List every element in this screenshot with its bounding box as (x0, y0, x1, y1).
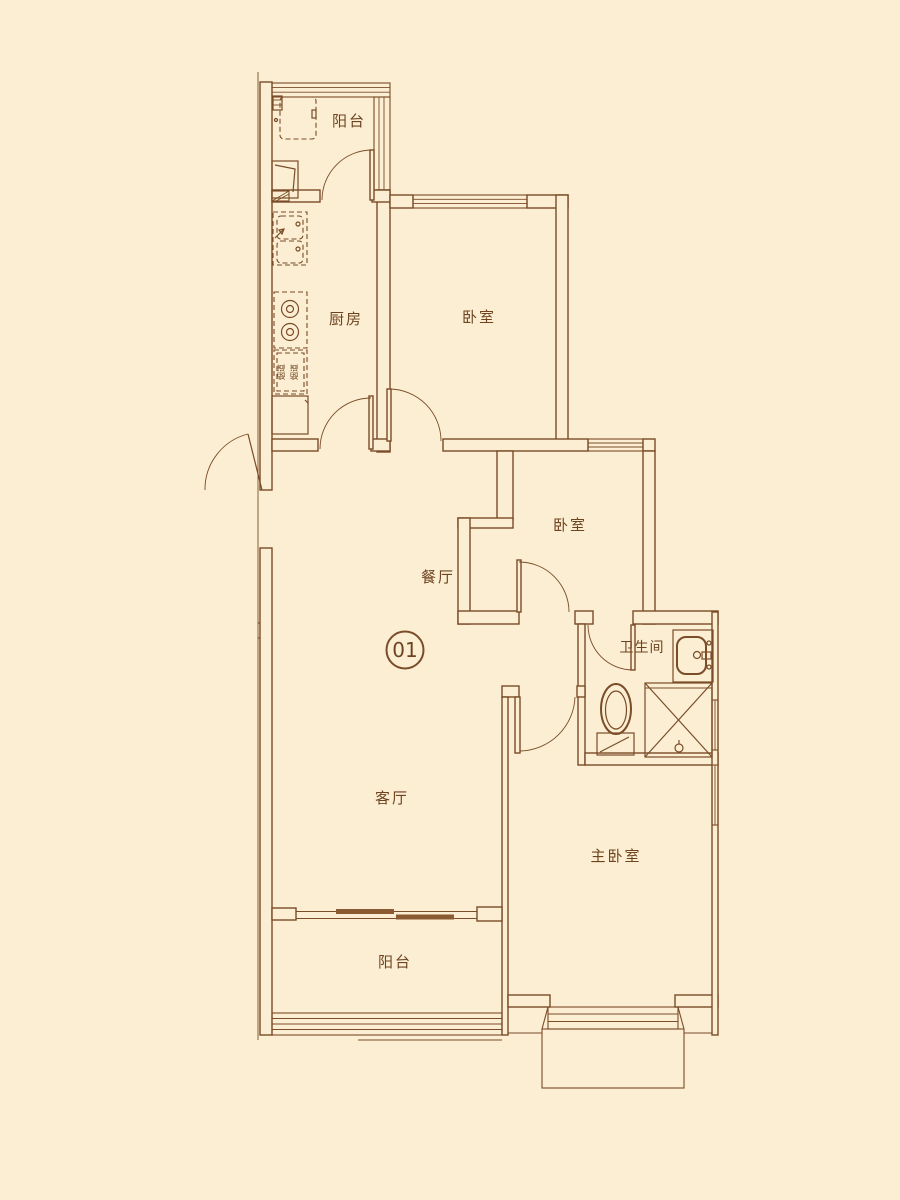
washbasin (673, 630, 713, 682)
kitchen-flue: 烟道 烟道 (274, 350, 307, 394)
unit-number: 01 (392, 638, 417, 662)
floor-plan-page: 烟道 烟道 (0, 0, 900, 1200)
bedroom-top-door (387, 389, 441, 441)
room-label-balcony-bottom: 阳台 (378, 953, 412, 971)
room-label-living: 客厅 (375, 789, 409, 807)
balcony-top-door (322, 150, 374, 200)
flue-label-1: 烟道 (276, 364, 286, 380)
room-label-bedroom-middle: 卧室 (553, 516, 587, 534)
window-bedroom-top (413, 195, 527, 208)
flue-label-2: 烟道 (289, 364, 299, 380)
window-bedroom-middle (588, 439, 643, 451)
sliding-door-living-balcony (296, 909, 477, 920)
bay-window-master (508, 1007, 712, 1088)
kitchen-cabinet (272, 396, 308, 434)
toilet (597, 684, 634, 755)
room-label-bathroom: 卫生间 (620, 640, 665, 656)
walls (260, 82, 718, 1035)
shower (645, 683, 712, 757)
master-bedroom-door (515, 697, 575, 753)
kitchen-fixtures: 烟道 烟道 (272, 212, 308, 434)
entry-door (205, 434, 262, 490)
room-label-kitchen: 厨房 (329, 310, 363, 328)
room-label-master-bedroom: 主卧室 (590, 847, 641, 865)
kitchen-door (320, 396, 373, 449)
room-label-balcony-top: 阳台 (332, 112, 366, 130)
unit-number-badge: 01 (387, 632, 424, 669)
washing-machine (273, 96, 316, 139)
room-label-bedroom-top: 卧室 (462, 308, 496, 326)
room-label-dining: 餐厅 (421, 568, 455, 586)
bedroom-middle-door (517, 560, 569, 612)
floor-plan: 烟道 烟道 (0, 0, 900, 1200)
kitchen-stove (274, 292, 307, 348)
balcony-top-fixtures (272, 96, 316, 198)
window-balcony-bottom (272, 1013, 502, 1040)
kitchen-sink (273, 212, 307, 265)
